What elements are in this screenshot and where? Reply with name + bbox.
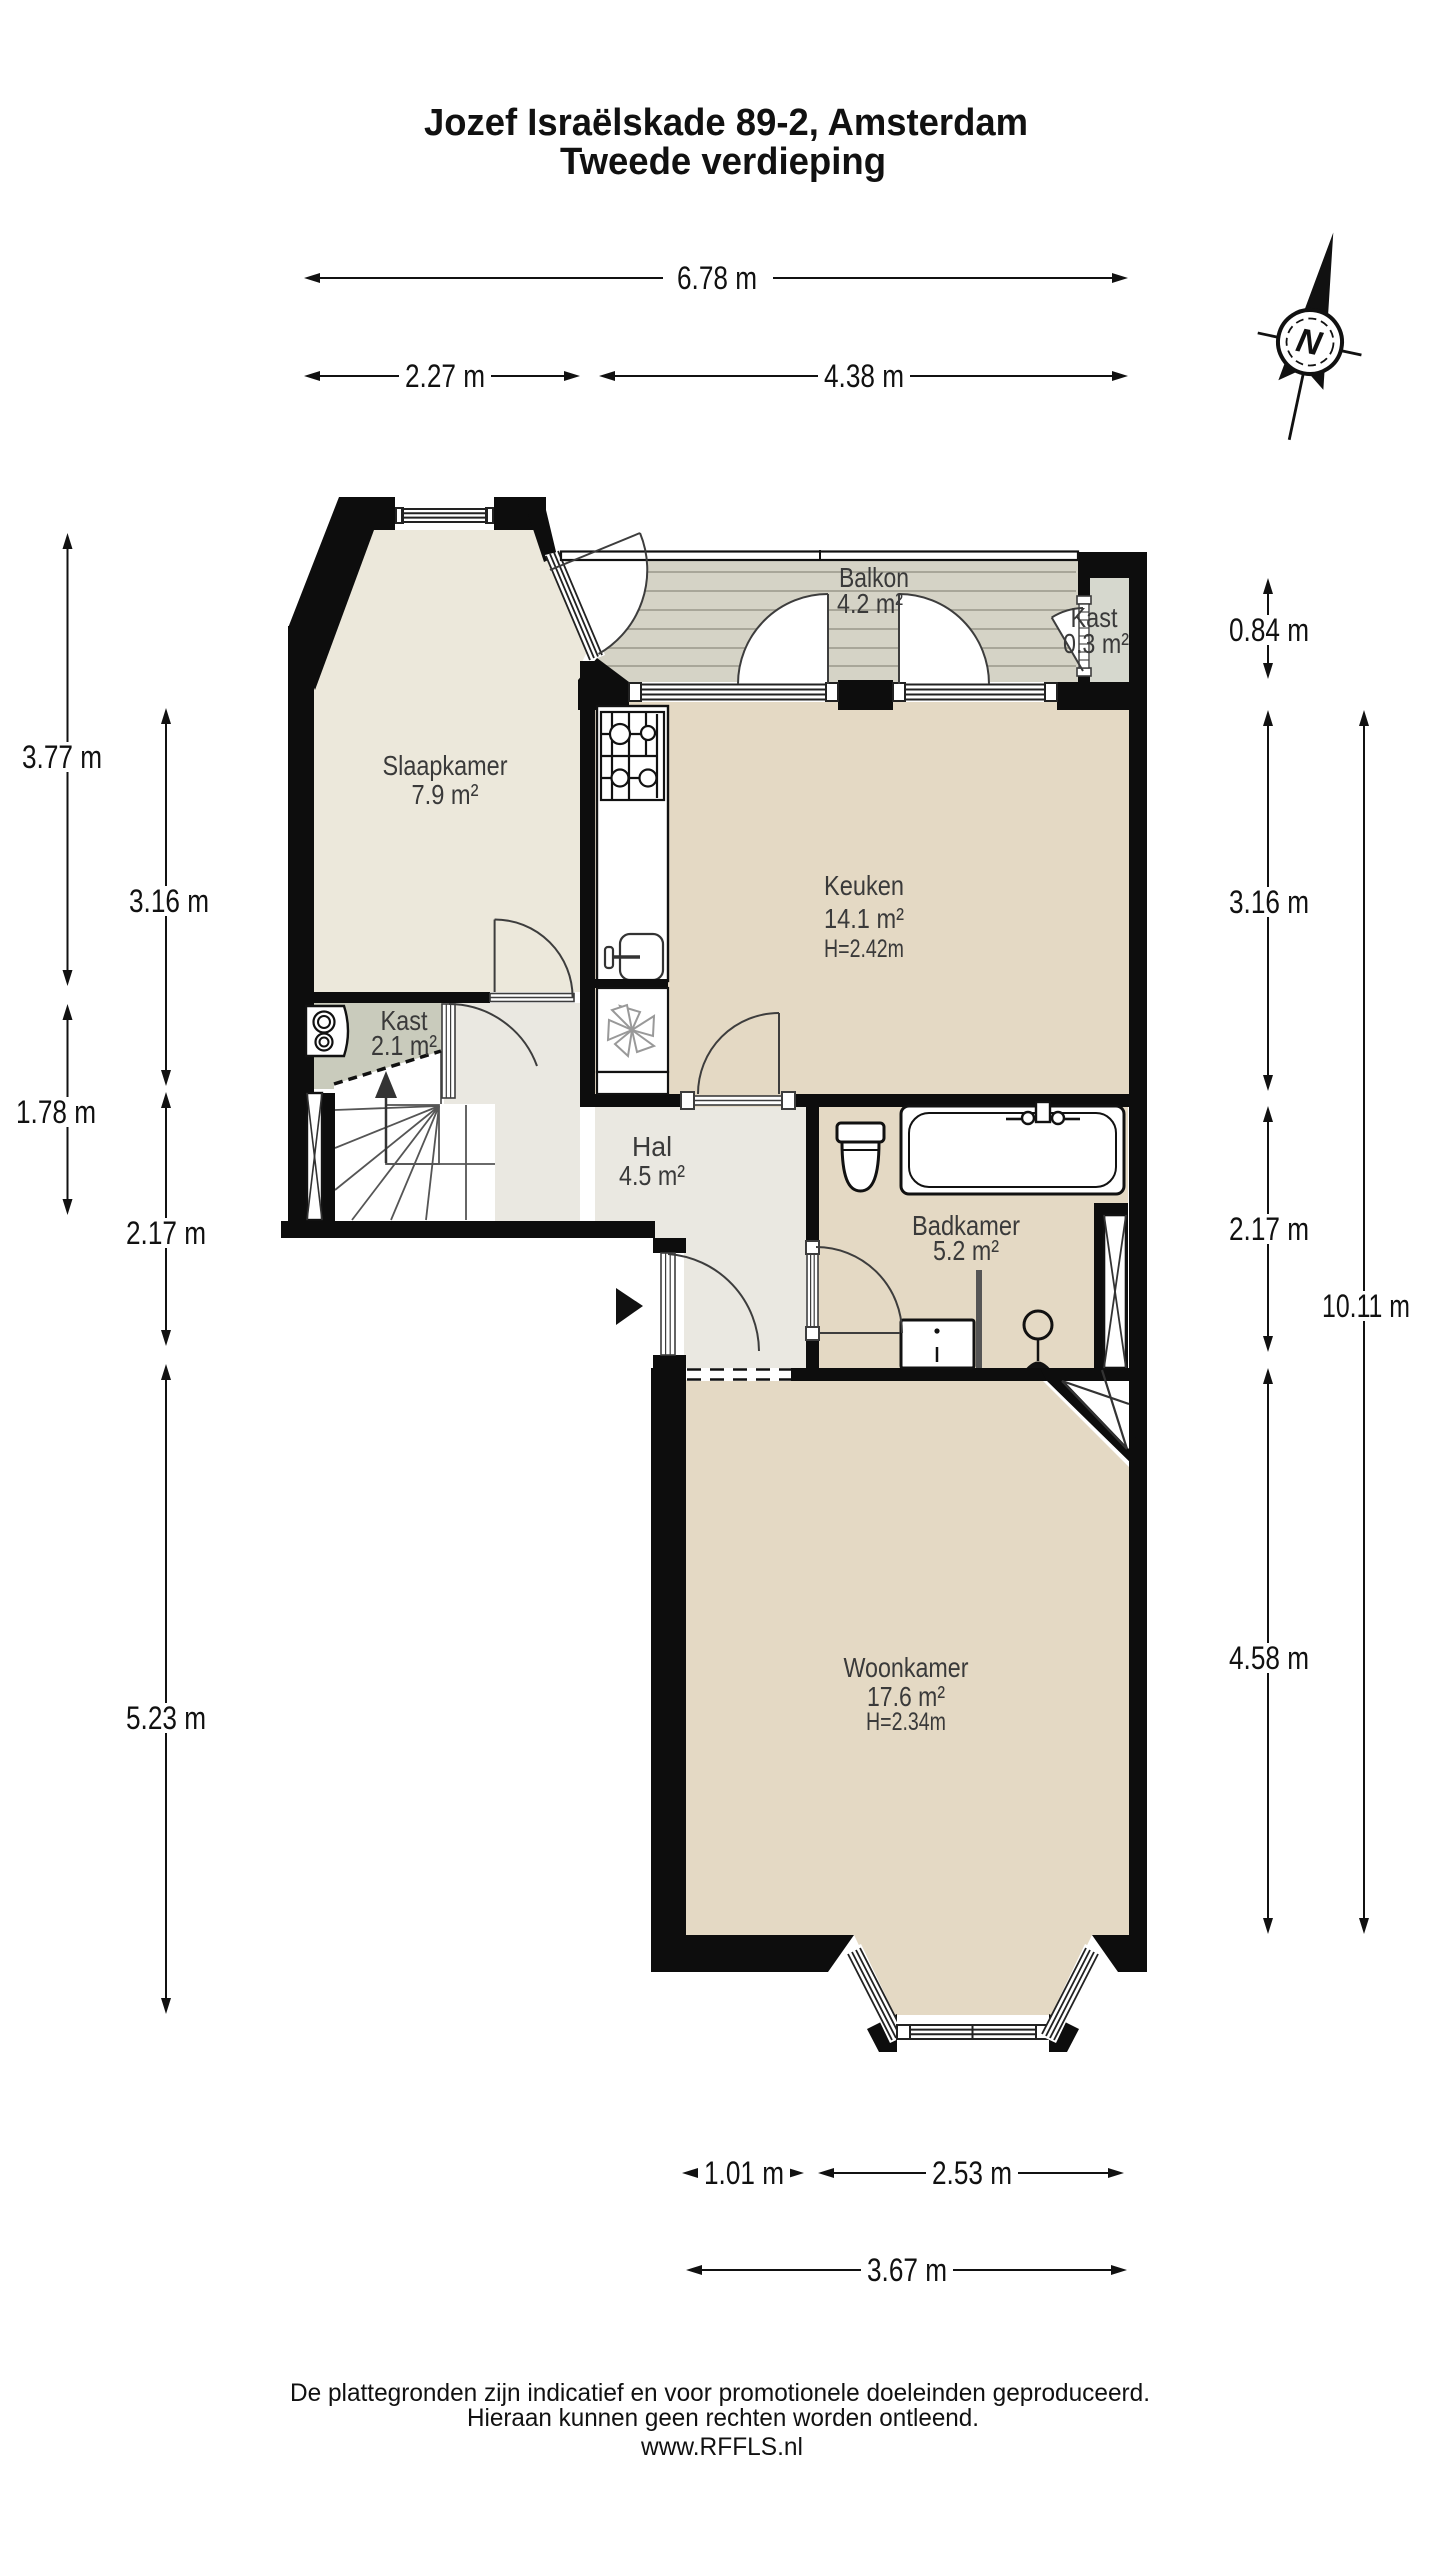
svg-text:3.77 m: 3.77 m <box>22 739 102 775</box>
svg-text:4.58 m: 4.58 m <box>1229 1640 1309 1676</box>
svg-text:De plattegronden zijn indicati: De plattegronden zijn indicatief en voor… <box>290 2379 1150 2407</box>
svg-text:1.78 m: 1.78 m <box>16 1094 96 1130</box>
svg-text:Tweede verdieping: Tweede verdieping <box>560 141 886 183</box>
svg-text:2.17 m: 2.17 m <box>126 1215 206 1251</box>
svg-text:4.5 m²: 4.5 m² <box>619 1160 685 1191</box>
svg-text:3.16 m: 3.16 m <box>1229 884 1309 920</box>
svg-text:Hal: Hal <box>632 1131 672 1162</box>
svg-text:Woonkamer: Woonkamer <box>844 1652 969 1683</box>
svg-text:H=2.34m: H=2.34m <box>866 1708 946 1736</box>
svg-text:H=2.42m: H=2.42m <box>824 935 904 963</box>
svg-text:Hieraan kunnen geen rechten wo: Hieraan kunnen geen rechten worden ontle… <box>467 2404 979 2432</box>
svg-text:5.2 m²: 5.2 m² <box>933 1235 999 1266</box>
svg-text:Slaapkamer: Slaapkamer <box>383 750 508 781</box>
svg-text:14.1 m²: 14.1 m² <box>824 903 904 934</box>
svg-text:0.84 m: 0.84 m <box>1229 612 1309 648</box>
svg-text:0.3 m²: 0.3 m² <box>1063 628 1129 659</box>
svg-text:2.1 m²: 2.1 m² <box>371 1030 437 1061</box>
svg-text:1.01 m: 1.01 m <box>704 2155 784 2191</box>
svg-text:4.2 m²: 4.2 m² <box>837 588 903 619</box>
svg-text:3.67 m: 3.67 m <box>867 2252 947 2288</box>
svg-text:www.RFFLS.nl: www.RFFLS.nl <box>640 2433 803 2461</box>
svg-text:2.53 m: 2.53 m <box>932 2155 1012 2191</box>
svg-text:2.27 m: 2.27 m <box>405 358 485 394</box>
svg-text:3.16 m: 3.16 m <box>129 883 209 919</box>
svg-text:5.23 m: 5.23 m <box>126 1700 206 1736</box>
svg-text:7.9 m²: 7.9 m² <box>412 779 479 810</box>
svg-text:Keuken: Keuken <box>824 870 904 901</box>
svg-text:6.78 m: 6.78 m <box>677 260 757 296</box>
svg-text:2.17 m: 2.17 m <box>1229 1211 1309 1247</box>
svg-text:4.38 m: 4.38 m <box>824 358 904 394</box>
svg-text:Jozef Israëlskade 89-2, Amster: Jozef Israëlskade 89-2, Amsterdam <box>424 102 1028 144</box>
svg-text:10.11 m: 10.11 m <box>1322 1288 1410 1324</box>
